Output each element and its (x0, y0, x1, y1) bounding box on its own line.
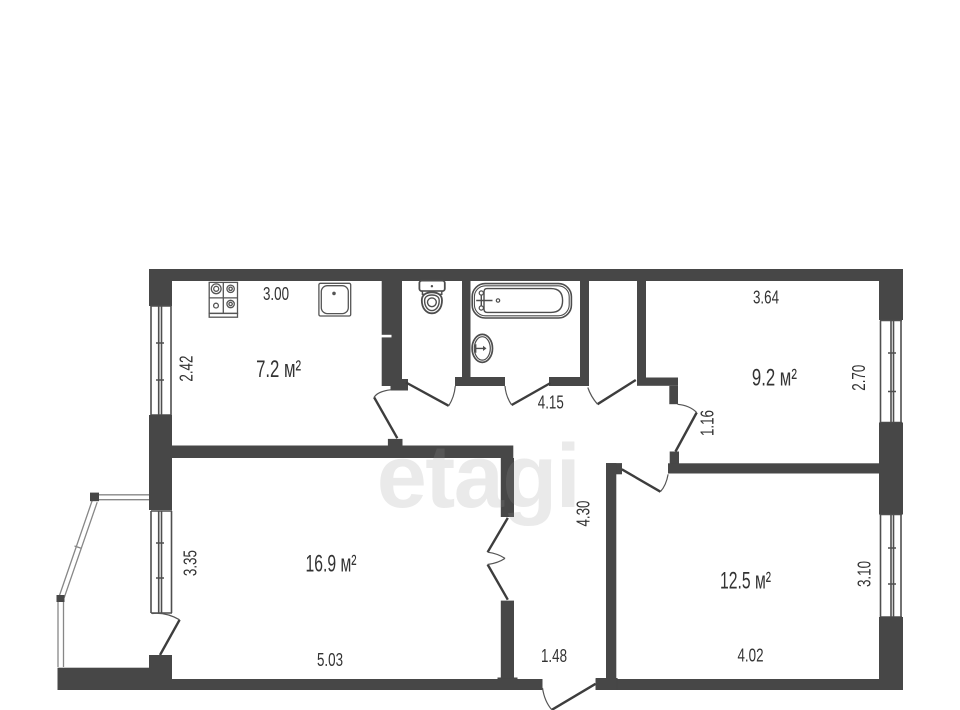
svg-text:16.9 м²: 16.9 м² (306, 550, 357, 577)
svg-text:7.2 м²: 7.2 м² (256, 356, 301, 383)
svg-text:5.03: 5.03 (317, 650, 343, 670)
svg-text:2.70: 2.70 (849, 365, 869, 391)
svg-text:4.02: 4.02 (738, 646, 764, 666)
svg-text:3.00: 3.00 (263, 284, 289, 304)
svg-text:etagi: etagi (377, 427, 580, 527)
svg-text:2.42: 2.42 (176, 356, 196, 382)
svg-text:12.5 м²: 12.5 м² (720, 568, 771, 595)
svg-text:3.10: 3.10 (855, 561, 875, 587)
svg-text:3.64: 3.64 (753, 287, 779, 307)
svg-text:4.15: 4.15 (538, 392, 564, 412)
svg-text:9.2 м²: 9.2 м² (752, 365, 797, 392)
svg-text:1.48: 1.48 (541, 646, 567, 666)
svg-text:1.16: 1.16 (698, 410, 718, 436)
svg-text:3.35: 3.35 (181, 550, 201, 576)
